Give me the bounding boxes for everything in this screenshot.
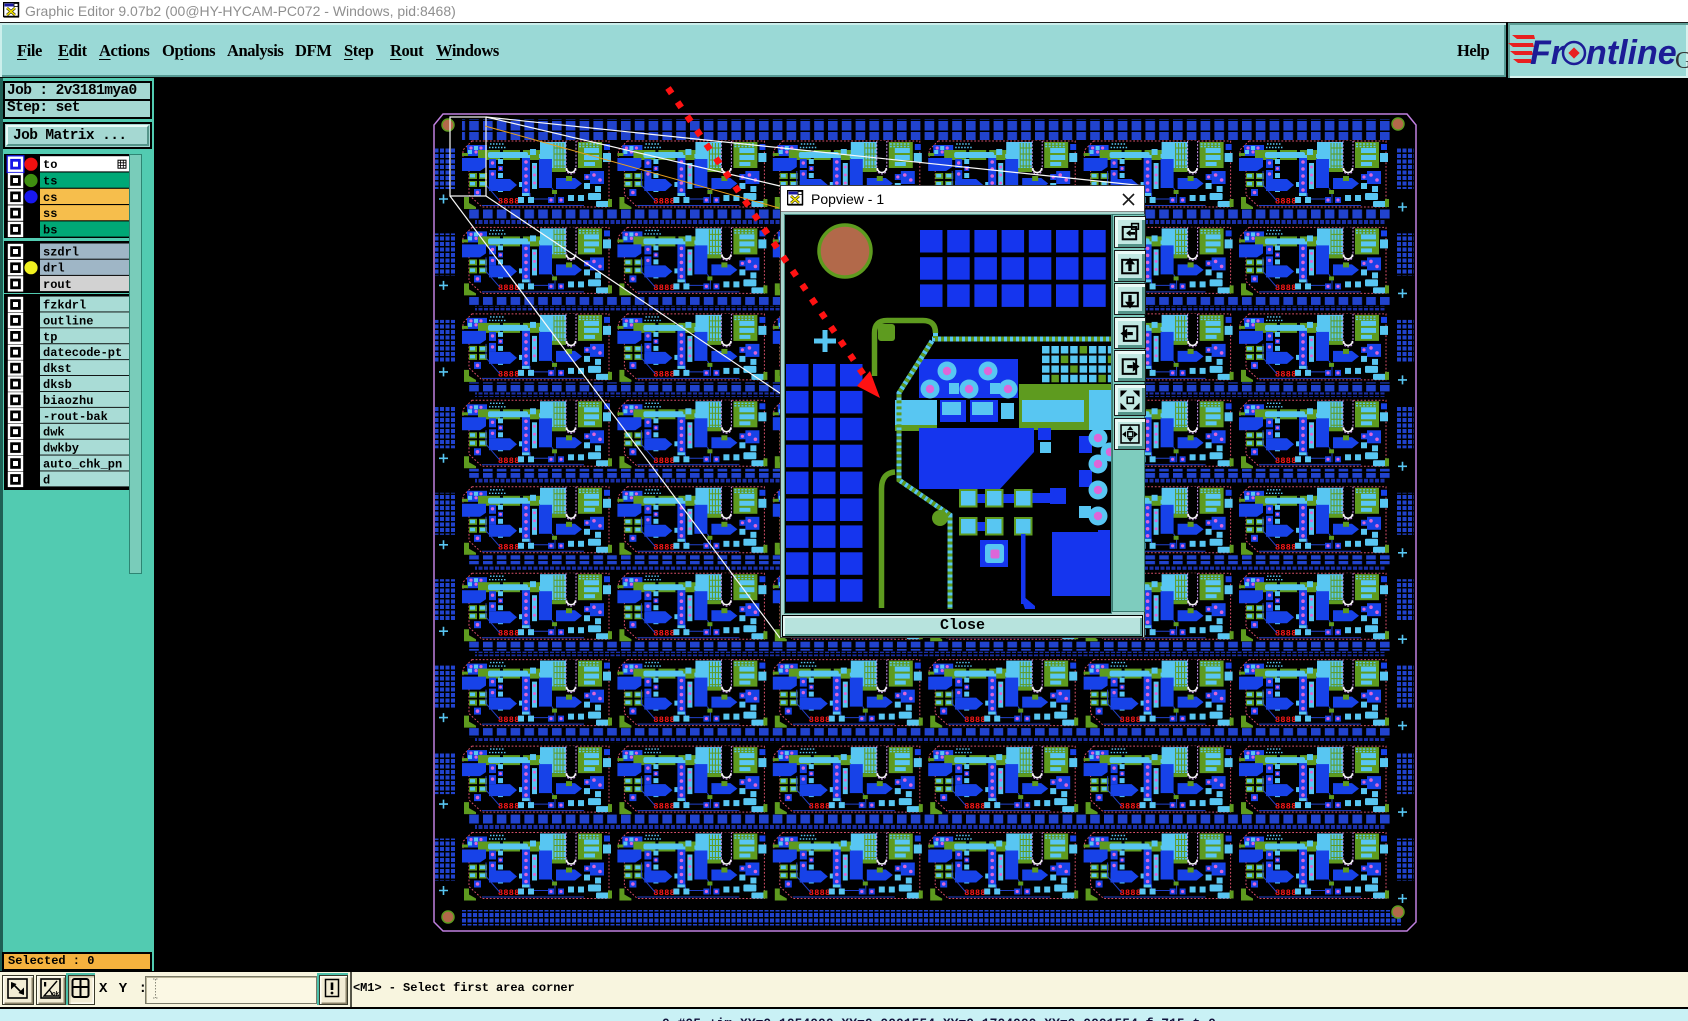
svg-text:auto_chk_pn: auto_chk_pn [43, 458, 122, 472]
svg-text:drl: drl [43, 262, 65, 276]
svg-text:-rout-bak: -rout-bak [43, 410, 108, 424]
svg-text:ss: ss [43, 207, 57, 221]
svg-text:to: to [43, 158, 57, 172]
svg-text:dwk: dwk [43, 426, 65, 440]
svg-text:datecode-pt: datecode-pt [43, 346, 122, 360]
svg-text:tp: tp [43, 330, 57, 344]
svg-text:G: G [1675, 48, 1688, 74]
svg-text:dkst: dkst [43, 362, 72, 376]
svg-text:outline: outline [43, 314, 93, 328]
svg-text:rout: rout [43, 278, 72, 292]
svg-text:szdrl: szdrl [43, 246, 79, 260]
svg-text:d: d [43, 473, 50, 487]
svg-text:fzkdrl: fzkdrl [43, 299, 86, 313]
svg-text:dksb: dksb [43, 378, 72, 392]
svg-text:cs: cs [43, 191, 57, 205]
svg-text:biaozhu: biaozhu [43, 394, 93, 408]
svg-text:Fr: Fr [1530, 34, 1566, 72]
svg-text:ts: ts [43, 175, 57, 189]
svg-text:ok: ok [52, 992, 60, 998]
svg-text:dwkby: dwkby [43, 442, 79, 456]
svg-text:ntline: ntline [1586, 34, 1677, 72]
svg-text:bs: bs [43, 223, 57, 237]
